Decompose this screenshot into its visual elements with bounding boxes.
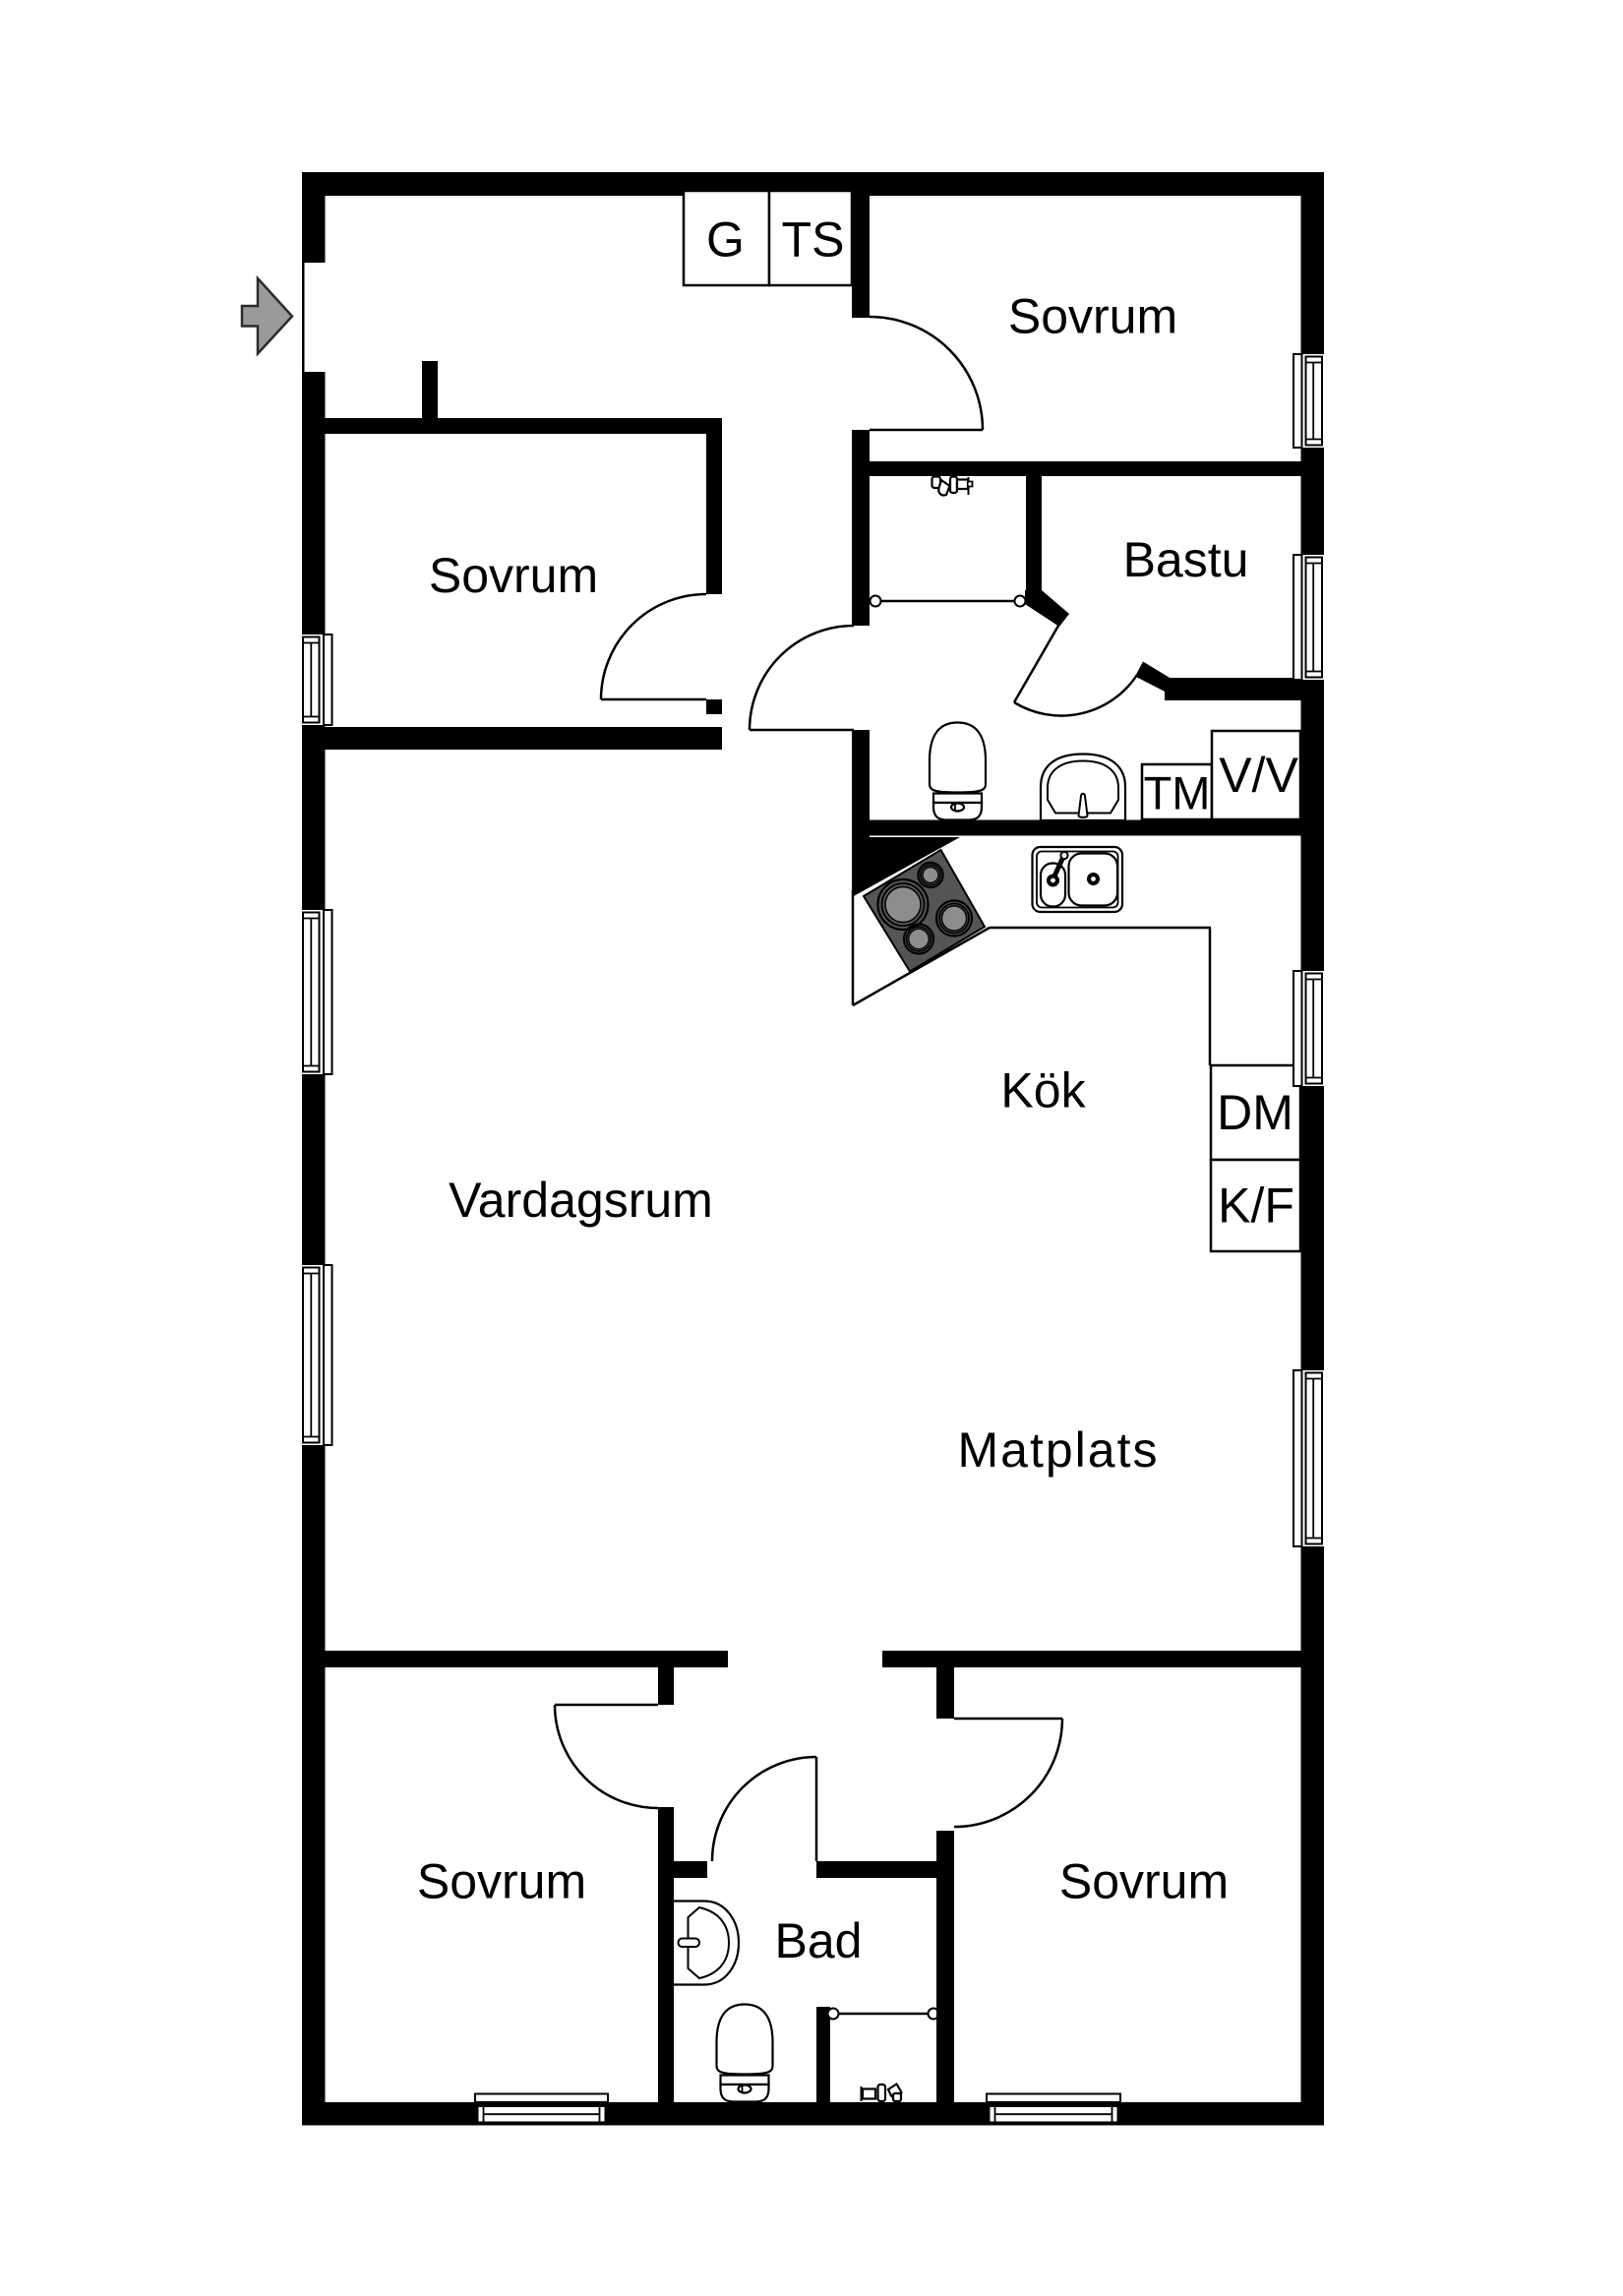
svg-text:Sovrum: Sovrum bbox=[417, 1854, 586, 1909]
svg-text:Sovrum: Sovrum bbox=[429, 548, 598, 603]
svg-text:K/F: K/F bbox=[1218, 1178, 1294, 1234]
svg-text:Sovrum: Sovrum bbox=[1008, 289, 1177, 344]
svg-text:DM: DM bbox=[1217, 1085, 1293, 1140]
svg-text:G: G bbox=[706, 212, 745, 268]
svg-text:TM: TM bbox=[1144, 767, 1211, 819]
svg-text:Kök: Kök bbox=[1000, 1063, 1086, 1118]
svg-text:Vardagsrum: Vardagsrum bbox=[449, 1173, 713, 1228]
svg-text:V/V: V/V bbox=[1219, 748, 1298, 803]
svg-text:Bad: Bad bbox=[775, 1913, 863, 1968]
svg-text:Sovrum: Sovrum bbox=[1059, 1854, 1229, 1909]
svg-text:Bastu: Bastu bbox=[1123, 532, 1249, 587]
svg-text:TS: TS bbox=[782, 212, 845, 268]
svg-text:Matplats: Matplats bbox=[958, 1422, 1160, 1478]
